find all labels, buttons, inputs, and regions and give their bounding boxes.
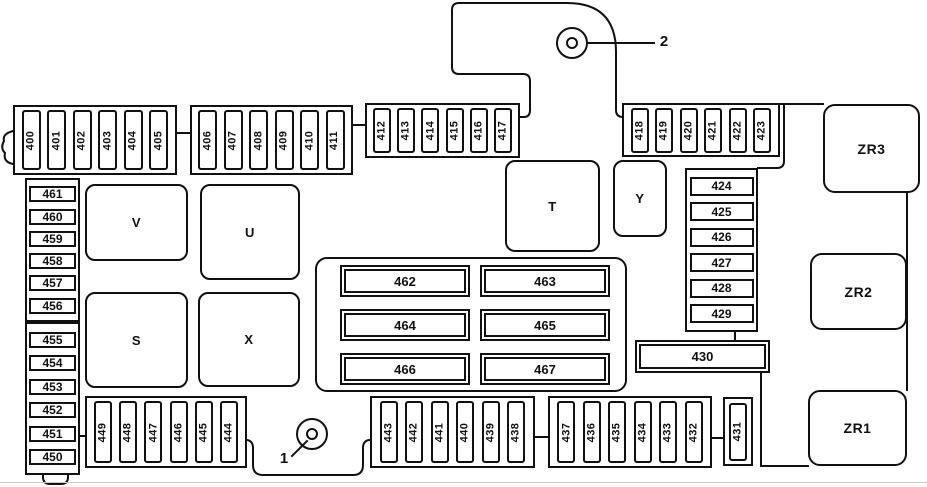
fuse-405: 405 bbox=[149, 110, 168, 170]
fuse-421: 421 bbox=[704, 108, 722, 153]
fuse-428: 428 bbox=[690, 279, 754, 298]
left-side-tab bbox=[2, 131, 13, 164]
fuse-441: 441 bbox=[431, 401, 449, 463]
fuse-443: 443 bbox=[380, 401, 398, 463]
mount-hole-2-center-icon bbox=[567, 38, 577, 48]
fuse-group-461-456: 461460459458457456 bbox=[25, 178, 80, 322]
fuse-418: 418 bbox=[631, 108, 649, 153]
relay-ZR3: ZR3 bbox=[823, 104, 920, 193]
fuse-420: 420 bbox=[680, 108, 698, 153]
fuse-452: 452 bbox=[29, 402, 76, 418]
fuse-group-412-417: 412413414415416417 bbox=[365, 103, 520, 158]
fuse-445: 445 bbox=[195, 401, 213, 463]
fuse-410: 410 bbox=[300, 110, 319, 170]
page-edge-line bbox=[0, 482, 927, 483]
fuse-414: 414 bbox=[421, 108, 439, 153]
fuse-450: 450 bbox=[29, 449, 76, 465]
fuse-423: 423 bbox=[753, 108, 771, 153]
fuse-box-diagram: 400401402403404405 406407408409410411 41… bbox=[0, 0, 927, 487]
fuse-451: 451 bbox=[29, 426, 76, 442]
fuse-426: 426 bbox=[690, 228, 754, 247]
fuse-412: 412 bbox=[373, 108, 391, 153]
fuse-461: 461 bbox=[29, 186, 76, 202]
fuse-413: 413 bbox=[397, 108, 415, 153]
fuse-453: 453 bbox=[29, 379, 76, 395]
fuse-415: 415 bbox=[446, 108, 464, 153]
fuse-432: 432 bbox=[685, 401, 703, 463]
fuse-457: 457 bbox=[29, 275, 76, 291]
fuse-444: 444 bbox=[220, 401, 238, 463]
fuse-group-406-411: 406407408409410411 bbox=[190, 105, 353, 175]
fuse-403: 403 bbox=[98, 110, 117, 170]
fuse-402: 402 bbox=[73, 110, 92, 170]
fuse-435: 435 bbox=[608, 401, 626, 463]
fuse-464: 464 bbox=[340, 309, 470, 341]
fuse-448: 448 bbox=[119, 401, 137, 463]
fuse-401: 401 bbox=[47, 110, 66, 170]
bottom-notch-outline bbox=[247, 440, 369, 475]
fuse-467: 467 bbox=[480, 353, 610, 385]
fuse-422: 422 bbox=[729, 108, 747, 153]
relay-U: U bbox=[200, 184, 300, 280]
fuse-409: 409 bbox=[275, 110, 294, 170]
fuse-458: 458 bbox=[29, 253, 76, 269]
relay-ZR2: ZR2 bbox=[810, 253, 907, 330]
fuse-455: 455 bbox=[29, 332, 76, 348]
fuse-460: 460 bbox=[29, 209, 76, 225]
fuse-436: 436 bbox=[583, 401, 601, 463]
marker-2-label: 2 bbox=[656, 34, 672, 50]
fuse-407: 407 bbox=[224, 110, 243, 170]
top-protrusion-outline bbox=[452, 3, 623, 117]
fuse-434: 434 bbox=[634, 401, 652, 463]
fuse-group-400-405: 400401402403404405 bbox=[13, 105, 177, 175]
fuse-465: 465 bbox=[480, 309, 610, 341]
fuse-427: 427 bbox=[690, 253, 754, 272]
relay-S: S bbox=[85, 292, 188, 388]
fuse-408: 408 bbox=[249, 110, 268, 170]
fuse-group-437-432: 437436435434433432 bbox=[548, 396, 712, 468]
fuse-404: 404 bbox=[124, 110, 143, 170]
fuse-433: 433 bbox=[659, 401, 677, 463]
fuse-459: 459 bbox=[29, 231, 76, 247]
fuse-437: 437 bbox=[557, 401, 575, 463]
fuse-group-449-444: 449448447446445444 bbox=[85, 396, 247, 468]
fuse-447: 447 bbox=[144, 401, 162, 463]
fuse-406: 406 bbox=[198, 110, 217, 170]
relay-ZR1: ZR1 bbox=[808, 390, 907, 466]
relay-Y: Y bbox=[613, 160, 667, 237]
fuse-416: 416 bbox=[470, 108, 488, 153]
fuse-446: 446 bbox=[170, 401, 188, 463]
fuse-466: 466 bbox=[340, 353, 470, 385]
fuse-group-455-450: 455454453452451450 bbox=[25, 322, 80, 475]
connector-430-bottom bbox=[761, 373, 808, 466]
mount-hole-1-icon bbox=[297, 419, 327, 449]
relay-V: V bbox=[85, 184, 188, 261]
fuse-429: 429 bbox=[690, 304, 754, 323]
fuse-439: 439 bbox=[482, 401, 500, 463]
fuse-431: 431 bbox=[723, 397, 753, 466]
fuse-449: 449 bbox=[94, 401, 112, 463]
fuse-456: 456 bbox=[29, 298, 76, 314]
fuse-462: 462 bbox=[340, 265, 470, 297]
fuse-438: 438 bbox=[507, 401, 525, 463]
fuse-411: 411 bbox=[326, 110, 345, 170]
fuse-group-418-423: 418419420421422423 bbox=[622, 103, 780, 157]
marker-1-label: 1 bbox=[276, 451, 292, 467]
fuse-group-462-467: 462463464465466467 bbox=[315, 257, 627, 392]
fuse-442: 442 bbox=[405, 401, 423, 463]
fuse-454: 454 bbox=[29, 355, 76, 371]
fuse-425: 425 bbox=[690, 202, 754, 221]
relay-T: T bbox=[505, 160, 600, 252]
fuse-group-424-429: 424425426427428429 bbox=[685, 168, 758, 332]
fuse-400: 400 bbox=[22, 110, 41, 170]
fuse-463: 463 bbox=[480, 265, 610, 297]
fuse-430: 430 bbox=[635, 340, 770, 373]
mount-hole-2-icon bbox=[557, 28, 587, 58]
fuse-419: 419 bbox=[655, 108, 673, 153]
mount-hole-1-center-icon bbox=[307, 429, 317, 439]
relay-X: X bbox=[198, 292, 300, 387]
fuse-440: 440 bbox=[456, 401, 474, 463]
fuse-417: 417 bbox=[494, 108, 512, 153]
fuse-424: 424 bbox=[690, 177, 754, 196]
fuse-group-443-438: 443442441440439438 bbox=[370, 396, 535, 468]
